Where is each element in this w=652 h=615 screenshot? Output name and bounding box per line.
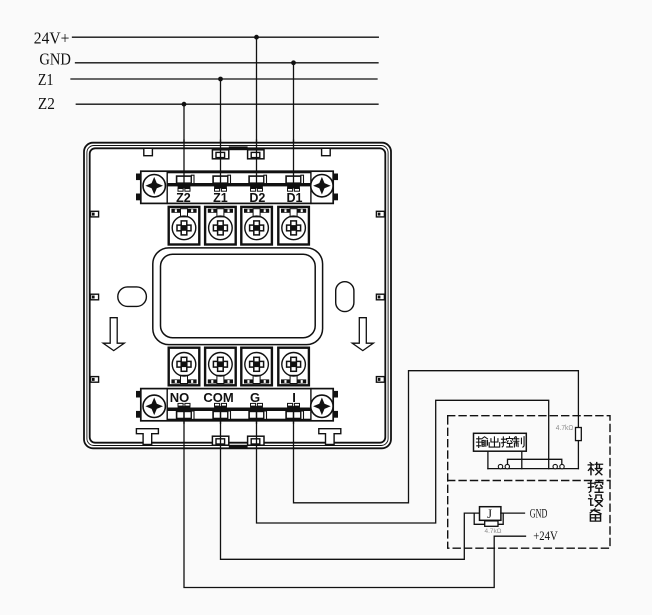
svg-text:GND: GND	[530, 506, 548, 520]
svg-text:COM: COM	[203, 390, 233, 405]
svg-text:Z1: Z1	[213, 191, 228, 205]
svg-text:J: J	[487, 507, 492, 521]
svg-text:Z1: Z1	[38, 70, 54, 89]
svg-text:4.7kΩ: 4.7kΩ	[485, 528, 502, 535]
svg-text:NO: NO	[170, 390, 190, 405]
svg-text:24V+: 24V+	[34, 29, 70, 48]
svg-text:D2: D2	[249, 191, 265, 205]
svg-text:I: I	[292, 390, 296, 405]
svg-text:G: G	[250, 390, 260, 405]
svg-text:GND: GND	[39, 49, 71, 68]
svg-text:4.7kΩ: 4.7kΩ	[556, 423, 574, 432]
svg-text:D1: D1	[287, 191, 303, 205]
svg-text:Z2: Z2	[176, 191, 191, 205]
svg-text:Z2: Z2	[38, 94, 55, 113]
svg-text:+24V: +24V	[533, 529, 558, 543]
